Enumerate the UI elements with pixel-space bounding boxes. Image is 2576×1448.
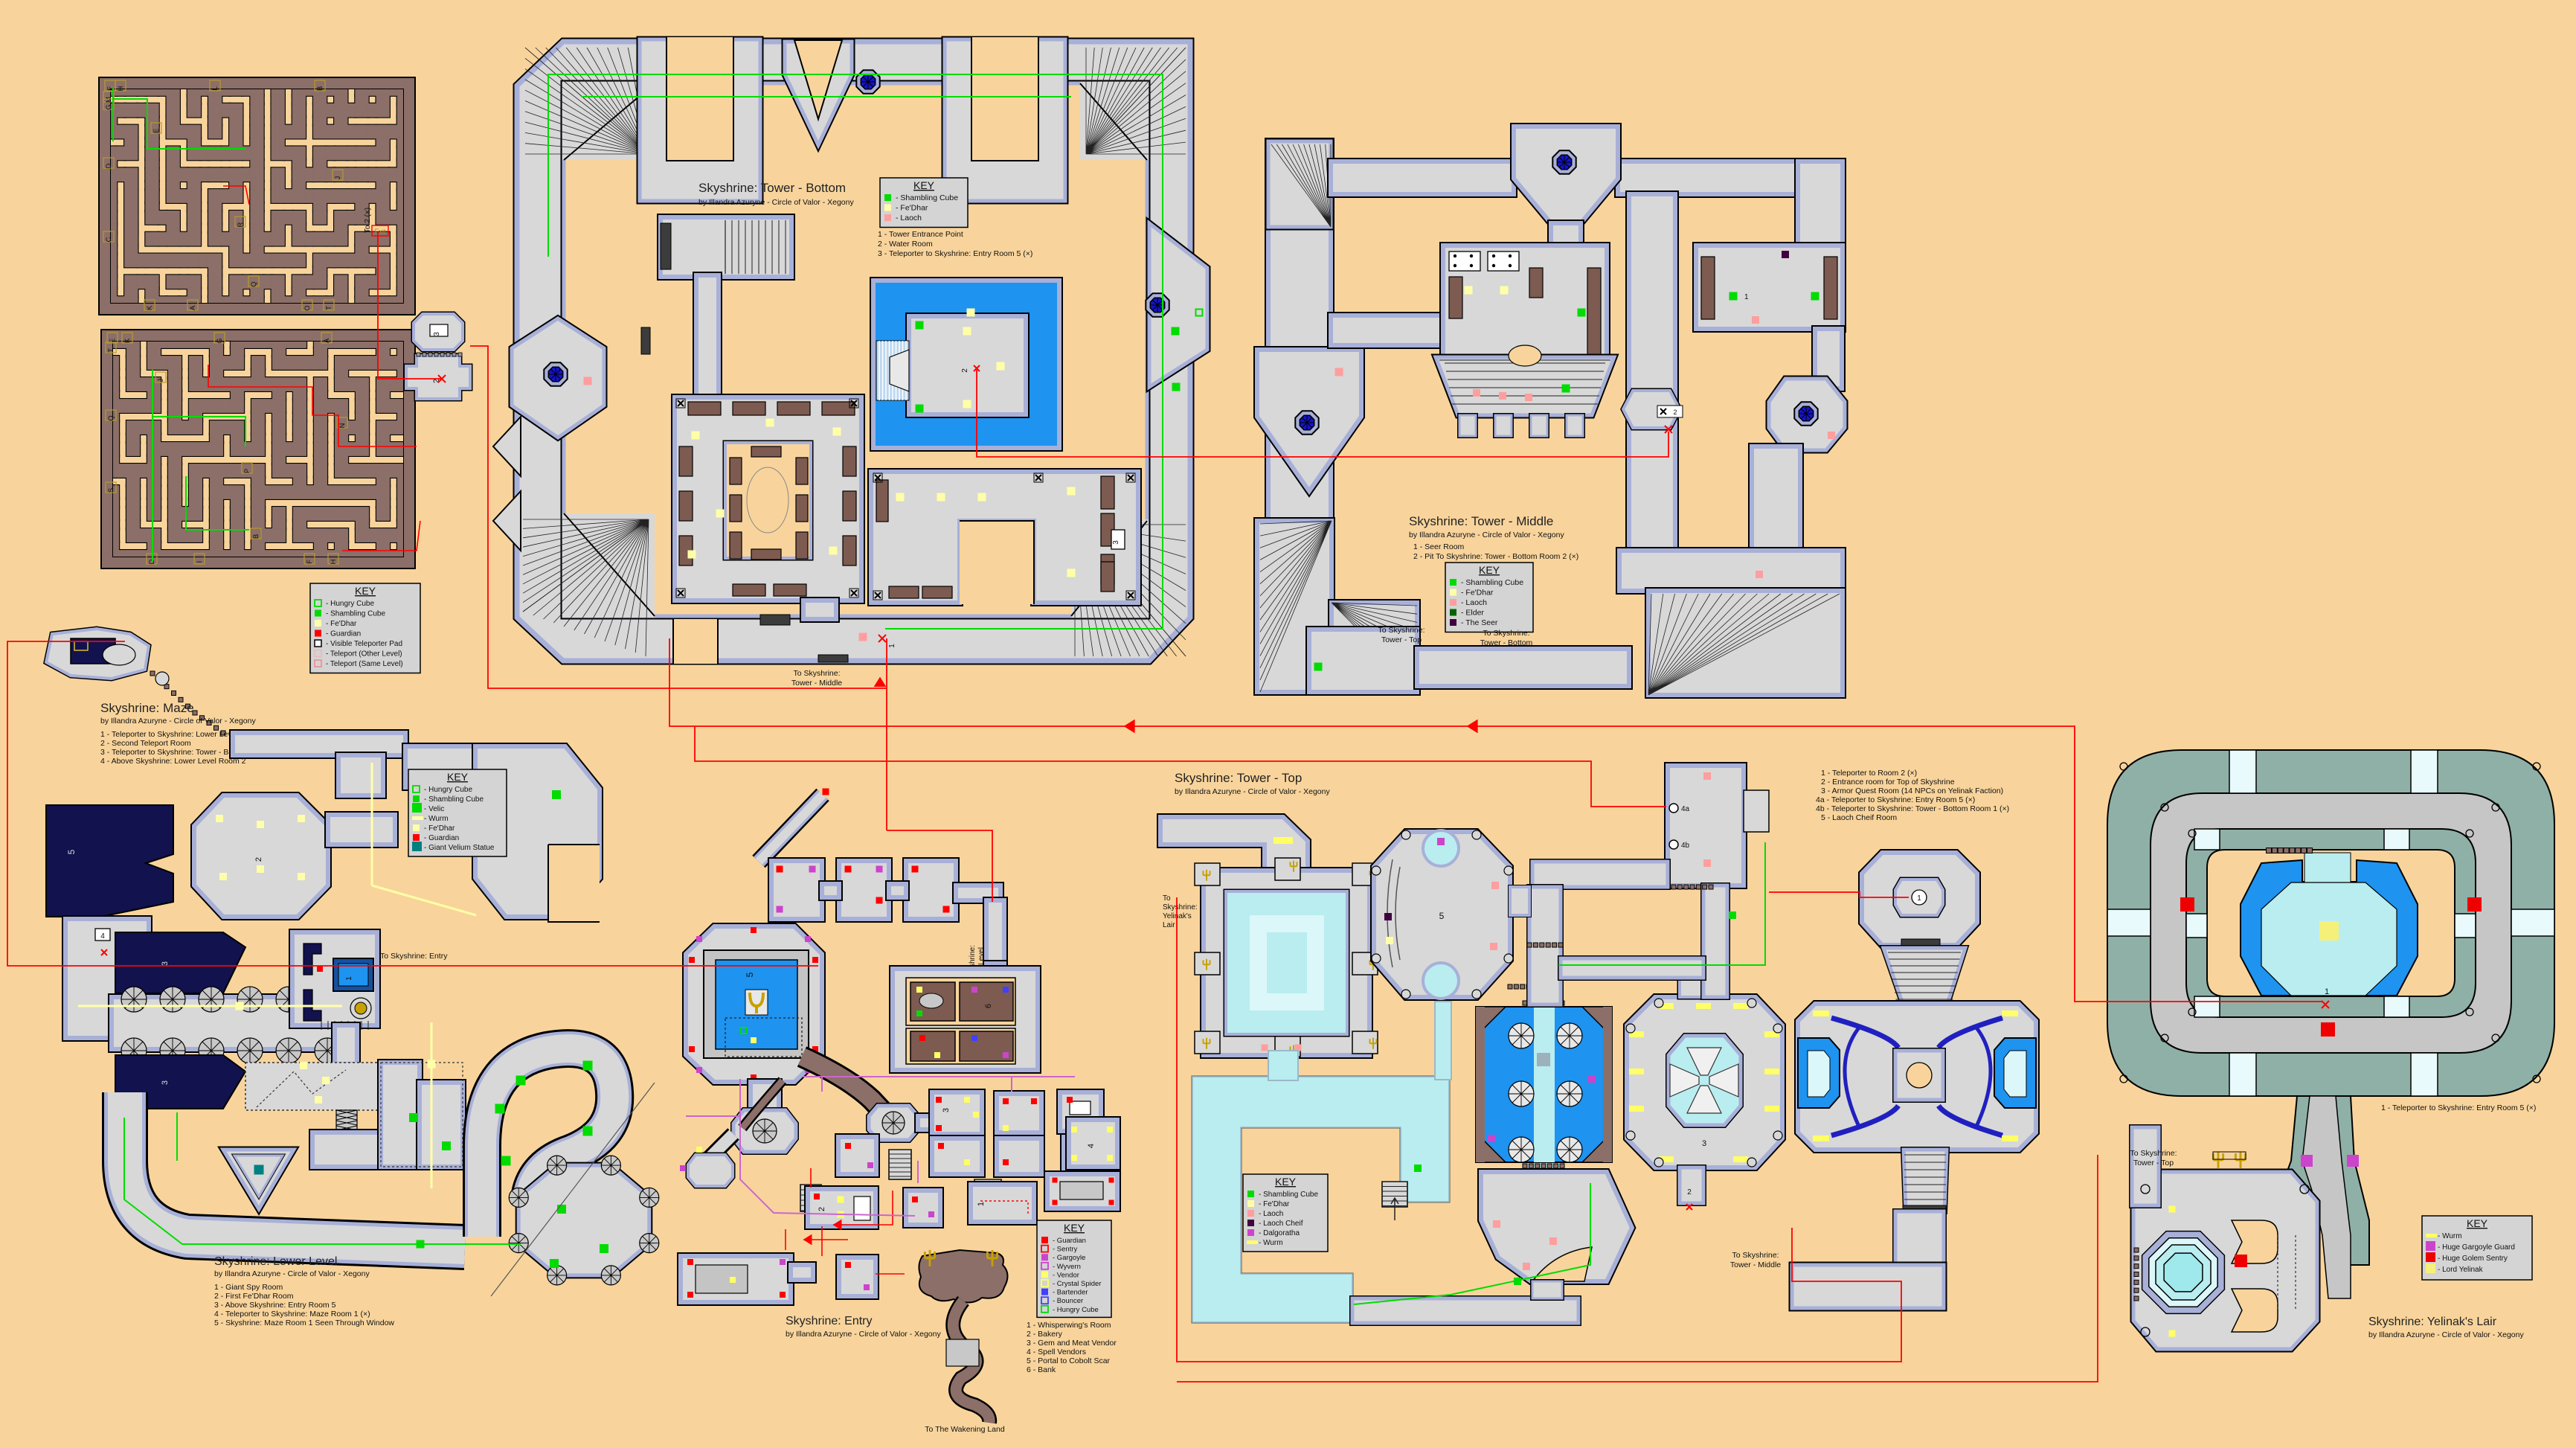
svg-text:- Teleport (Other Level): - Teleport (Other Level) [326, 650, 402, 659]
svg-text:2: 2 [1673, 409, 1677, 416]
svg-text:3 - Gem and Meat Vendor: 3 - Gem and Meat Vendor [1027, 1339, 1117, 1348]
svg-text:Lair: Lair [1163, 921, 1175, 929]
svg-text:- Shambling Cube: - Shambling Cube [1259, 1191, 1318, 1199]
svg-text:L: L [211, 86, 219, 90]
svg-text:- Wurm: - Wurm [424, 815, 449, 823]
svg-text:Skyshrine: Tower - Bottom: Skyshrine: Tower - Bottom [698, 181, 846, 195]
svg-text:- Crystal Spider: - Crystal Spider [1053, 1280, 1101, 1288]
svg-text:- Fe'Dhar: - Fe'Dhar [424, 824, 455, 833]
svg-text:- Fe'Dhar: - Fe'Dhar [896, 204, 928, 213]
svg-text:P: P [243, 469, 251, 473]
svg-text:- Huge Golem Sentry: - Huge Golem Sentry [2438, 1255, 2508, 1263]
svg-text:G: G [216, 338, 224, 343]
svg-text:H: H [117, 86, 125, 91]
svg-text:- Velic: - Velic [424, 805, 444, 813]
svg-text:G: G [105, 104, 113, 109]
svg-text:by Illandra Azuryne - Circle o: by Illandra Azuryne - Circle of Valor - … [786, 1330, 941, 1339]
svg-text:1: 1 [345, 976, 353, 981]
svg-text:- Wurm: - Wurm [1259, 1239, 1283, 1247]
svg-text:3: 3 [1112, 540, 1120, 545]
svg-text:2 - Entrance room for Top of S: 2 - Entrance room for Top of Skyshrine [1821, 778, 1955, 787]
svg-text:- Visible Teleporter Pad: - Visible Teleporter Pad [326, 640, 402, 648]
svg-text:- Laoch Cheif: - Laoch Cheif [1259, 1220, 1303, 1228]
svg-text:1 - Teleporter to Room 2 (×): 1 - Teleporter to Room 2 (×) [1821, 769, 1917, 778]
svg-text:- Lord Yelinak: - Lord Yelinak [2438, 1266, 2484, 1274]
svg-text:1: 1 [888, 644, 896, 648]
svg-text:T: T [325, 306, 333, 310]
svg-text:3 - Teleporter to Skyshrine: E: 3 - Teleporter to Skyshrine: Entry Room … [878, 249, 1032, 258]
svg-text:- Hungry Cube: - Hungry Cube [1053, 1306, 1099, 1314]
svg-text:KEY: KEY [2467, 1217, 2488, 1229]
svg-text:by Illandra Azuryne - Circle o: by Illandra Azuryne - Circle of Valor - … [1409, 531, 1564, 539]
svg-text:B: B [316, 86, 324, 91]
svg-text:- Giant Velium Statue: - Giant Velium Statue [424, 844, 495, 852]
svg-text:2: 2 [818, 1207, 826, 1211]
svg-text:4b - Teleporter to Skyshrine:: 4b - Teleporter to Skyshrine: Tower - Bo… [1816, 804, 2009, 813]
svg-text:2 - Pit To Skyshrine: Tower -: 2 - Pit To Skyshrine: Tower - Bottom Roo… [1413, 552, 1578, 561]
svg-text:2: 2 [961, 368, 969, 373]
svg-text:To Skyshrine: Entry: To Skyshrine: Entry [380, 952, 448, 961]
svg-text:- Laoch: - Laoch [1461, 598, 1487, 607]
svg-text:- Teleport (Same Level): - Teleport (Same Level) [326, 660, 403, 668]
svg-text:Q: Q [250, 281, 258, 286]
svg-text:To 2 (×): To 2 (×) [364, 208, 372, 233]
svg-text:Tower - Top: Tower - Top [1381, 635, 1422, 644]
svg-text:To: To [1163, 894, 1171, 903]
svg-text:K: K [146, 305, 154, 310]
svg-text:Skyshrine: Entry: Skyshrine: Entry [786, 1315, 872, 1327]
svg-text:To Skyshrine:: To Skyshrine: [1483, 629, 1529, 638]
svg-text:KEY: KEY [1064, 1222, 1085, 1234]
svg-text:1 - Teleporter to Skyshrine: E: 1 - Teleporter to Skyshrine: Entry Room … [2381, 1103, 2536, 1112]
svg-text:by Illandra Azuryne - Circle o: by Illandra Azuryne - Circle of Valor - … [2368, 1330, 2524, 1339]
svg-text:6: 6 [984, 1004, 993, 1008]
svg-text:- Guardian: - Guardian [326, 630, 361, 638]
svg-text:J: J [334, 176, 342, 179]
svg-text:D: D [105, 163, 113, 168]
svg-text:- Fe'Dhar: - Fe'Dhar [1461, 589, 1494, 598]
svg-text:5 - Skyshrine: Maze Room 1 See: 5 - Skyshrine: Maze Room 1 Seen Through … [214, 1319, 394, 1327]
svg-text:To Skyshrine:: To Skyshrine: [2130, 1149, 2177, 1158]
svg-text:1 - Giant Spy Room: 1 - Giant Spy Room [214, 1283, 283, 1292]
svg-text:Skyshrine: Maze: Skyshrine: Maze [100, 701, 194, 715]
svg-text:2: 2 [1687, 1188, 1692, 1196]
svg-text:Tower - Middle: Tower - Middle [791, 679, 842, 688]
svg-text:1: 1 [1917, 894, 1921, 903]
svg-text:Exit: Exit [374, 228, 386, 235]
svg-text:Skyshrine: Lower Level: Skyshrine: Lower Level [214, 1255, 337, 1268]
svg-text:3 - Armor Quest Room (14 NPCs: 3 - Armor Quest Room (14 NPCs on Yelinak… [1821, 787, 2003, 795]
svg-text:Skyshrine: Tower - Middle: Skyshrine: Tower - Middle [1409, 514, 1553, 528]
svg-text:1 - Tower Entrance Point: 1 - Tower Entrance Point [878, 230, 963, 239]
svg-text:M: M [105, 97, 113, 103]
svg-text:- Hungry Cube: - Hungry Cube [326, 600, 374, 608]
svg-text:- Shambling Cube: - Shambling Cube [424, 795, 484, 804]
svg-text:KEY: KEY [913, 179, 935, 191]
svg-text:2 - Bakery: 2 - Bakery [1027, 1330, 1063, 1339]
svg-text:by Illandra Azuryne - Circle o: by Illandra Azuryne - Circle of Valor - … [214, 1269, 370, 1278]
svg-text:1: 1 [2325, 987, 2329, 996]
svg-text:- Laoch: - Laoch [896, 214, 922, 222]
svg-text:1 - Seer Room: 1 - Seer Room [1413, 542, 1465, 551]
svg-text:- Guardian: - Guardian [1053, 1237, 1086, 1245]
svg-text:1: 1 [1744, 293, 1749, 301]
svg-text:- Guardian: - Guardian [424, 834, 459, 842]
svg-text:S: S [107, 488, 115, 493]
svg-text:To Skyshrine:: To Skyshrine: [793, 669, 840, 678]
svg-text:4 - Teleporter to Skyshrine: M: 4 - Teleporter to Skyshrine: Maze Room 1… [214, 1310, 370, 1319]
svg-text:I: I [196, 561, 204, 563]
svg-text:- Elder: - Elder [1461, 609, 1484, 618]
svg-text:- Dalgoratha: - Dalgoratha [1259, 1229, 1300, 1237]
svg-text:3: 3 [1702, 1139, 1706, 1148]
svg-text:2 - Water Room: 2 - Water Room [878, 240, 933, 249]
svg-text:3 - Above Skyshrine: Entry Roo: 3 - Above Skyshrine: Entry Room 5 [214, 1301, 336, 1310]
svg-text:1: 1 [977, 1202, 986, 1206]
svg-text:Tower - Bottom: Tower - Bottom [1480, 638, 1533, 647]
svg-text:Q: Q [107, 415, 115, 420]
svg-text:by Illandra Azuryne - Circle o: by Illandra Azuryne - Circle of Valor - … [698, 198, 854, 207]
svg-text:- Shambling Cube: - Shambling Cube [326, 610, 385, 618]
svg-text:- Bouncer: - Bouncer [1053, 1297, 1083, 1305]
svg-text:- Fe'Dhar: - Fe'Dhar [326, 620, 357, 628]
svg-text:O: O [303, 305, 312, 310]
svg-text:KEY: KEY [447, 771, 469, 783]
svg-text:- Sentry: - Sentry [1053, 1246, 1078, 1254]
svg-text:- Bartender: - Bartender [1053, 1289, 1088, 1297]
svg-text:- Hungry Cube: - Hungry Cube [424, 786, 472, 794]
svg-text:- Shambling Cube: - Shambling Cube [1461, 578, 1523, 587]
svg-text:5: 5 [1439, 911, 1445, 921]
svg-text:2: 2 [254, 857, 263, 862]
svg-text:To The Wakening Land: To The Wakening Land [925, 1425, 1005, 1434]
svg-text:- The Seer: - The Seer [1461, 618, 1498, 627]
svg-text:by Illandra Azuryne - Circle o: by Illandra Azuryne - Circle of Valor - … [1175, 787, 1330, 796]
svg-text:C: C [105, 237, 113, 242]
svg-text:- Huge Gargoyle Guard: - Huge Gargoyle Guard [2438, 1243, 2515, 1252]
svg-text:4: 4 [1087, 1144, 1096, 1148]
svg-text:3: 3 [942, 1108, 951, 1112]
svg-text:To Skyshrine:: To Skyshrine: [1732, 1251, 1779, 1260]
svg-text:Skyshrine: Tower - Top: Skyshrine: Tower - Top [1175, 771, 1302, 785]
svg-text:E: E [152, 129, 161, 133]
svg-text:4b: 4b [1681, 842, 1690, 850]
svg-text:J: J [157, 378, 165, 382]
svg-text:KEY: KEY [355, 585, 376, 597]
svg-text:KEY: KEY [1275, 1176, 1297, 1188]
svg-text:1 - Whisperwing's Room: 1 - Whisperwing's Room [1027, 1321, 1111, 1330]
svg-text:3: 3 [161, 1080, 170, 1085]
svg-text:B: B [252, 534, 260, 539]
svg-text:3: 3 [433, 332, 441, 336]
svg-text:4 - Above Skyshrine: Lower Lev: 4 - Above Skyshrine: Lower Level Room 2 [100, 757, 246, 766]
svg-text:5: 5 [745, 972, 755, 977]
svg-text:- Gargoyle: - Gargoyle [1053, 1254, 1085, 1262]
svg-text:H: H [330, 559, 338, 564]
svg-text:A: A [189, 305, 197, 310]
svg-text:5 - Laoch Cheif Room: 5 - Laoch Cheif Room [1821, 813, 1897, 822]
svg-text:Tower - Top: Tower - Top [2133, 1159, 2174, 1167]
svg-text:by Illandra Azuryne - Circle o: by Illandra Azuryne - Circle of Valor - … [100, 717, 256, 725]
svg-text:4a: 4a [1681, 805, 1690, 813]
svg-text:4: 4 [100, 932, 105, 941]
svg-text:2 - First Fe'Dhar Room: 2 - First Fe'Dhar Room [214, 1292, 294, 1301]
svg-text:F: F [306, 560, 314, 564]
svg-text:- Laoch: - Laoch [1259, 1210, 1283, 1218]
svg-text:K: K [123, 338, 132, 343]
svg-text:6 - Bank: 6 - Bank [1027, 1365, 1056, 1374]
svg-text:Tower - Middle: Tower - Middle [1730, 1260, 1781, 1269]
svg-text:- Wyvern: - Wyvern [1053, 1263, 1081, 1271]
svg-text:T: T [107, 348, 115, 353]
svg-text:To Skyshrine:: To Skyshrine: [1378, 626, 1424, 635]
svg-text:5: 5 [66, 849, 77, 854]
svg-text:- Shambling Cube: - Shambling Cube [896, 193, 958, 202]
svg-text:2 - Second Teleport Room: 2 - Second Teleport Room [100, 739, 191, 748]
svg-text:KEY: KEY [1479, 564, 1500, 576]
svg-text:4 - Spell Vendors: 4 - Spell Vendors [1027, 1348, 1086, 1356]
svg-text:- Fe'Dhar: - Fe'Dhar [1259, 1200, 1290, 1208]
svg-text:N: N [338, 423, 347, 428]
svg-text:4a - Teleporter to Skyshrine:: 4a - Teleporter to Skyshrine: Entry Room… [1816, 795, 1975, 804]
svg-text:- Vendor: - Vendor [1053, 1271, 1079, 1279]
svg-text:R: R [237, 222, 245, 227]
svg-text:Skyshrine: Yelinak's Lair: Skyshrine: Yelinak's Lair [2368, 1316, 2497, 1328]
svg-text:A: A [323, 338, 331, 343]
svg-text:- Wurm: - Wurm [2438, 1232, 2462, 1240]
svg-text:5 - Portal to Cobolt Scar: 5 - Portal to Cobolt Scar [1027, 1356, 1111, 1365]
svg-text:Skyshrine:: Skyshrine: [1163, 903, 1198, 912]
